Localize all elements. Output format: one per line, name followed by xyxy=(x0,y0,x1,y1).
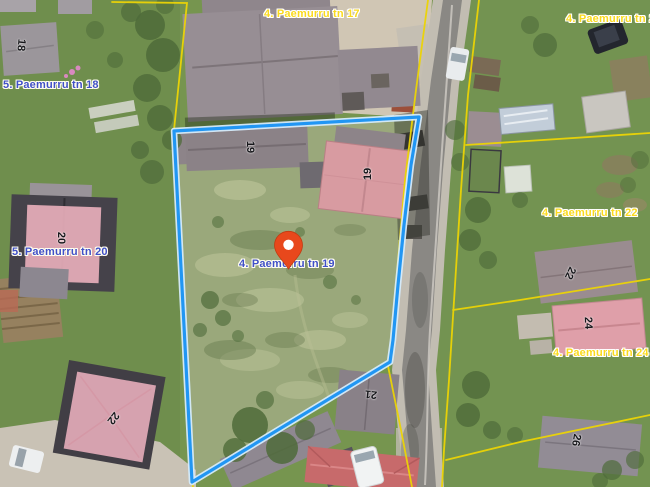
address-label-tn18: 5. Paemurru tn 18 xyxy=(3,79,99,91)
building-26 xyxy=(538,416,642,477)
building-number-21: 21 xyxy=(364,387,377,400)
location-pin-icon[interactable] xyxy=(272,229,305,271)
address-label-tn20-right: 4. Paemurru tn 20 xyxy=(566,13,650,25)
building-number-26: 26 xyxy=(569,433,583,447)
address-label-tn22: 4. Paemurru tn 22 xyxy=(542,207,638,219)
building-number-18: 18 xyxy=(14,38,27,51)
building-number-19-pink: 19 xyxy=(362,168,374,180)
address-label-tn24: 4. Paemurru tn 24 xyxy=(553,347,649,359)
address-label-tn17: 4. Paemurru tn 17 xyxy=(264,8,360,20)
satellite-imagery xyxy=(0,0,650,487)
address-label-tn20-left: 5. Paemurru tn 20 xyxy=(12,246,108,258)
building-number-24: 24 xyxy=(582,317,594,330)
building-number-19-barn: 19 xyxy=(244,141,256,153)
building-number-20: 20 xyxy=(55,232,67,244)
tarp-pile xyxy=(499,104,555,135)
map-viewport[interactable]: 4. Paemurru tn 17 4. Paemurru tn 20 5. P… xyxy=(0,0,650,487)
